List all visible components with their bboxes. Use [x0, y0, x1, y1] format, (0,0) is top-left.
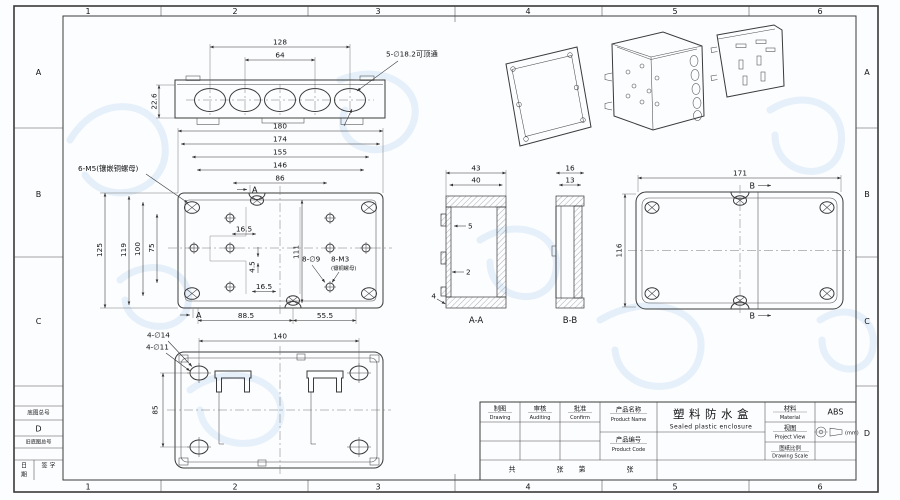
dim-4-5: 4.5: [248, 261, 257, 273]
confirm-label-en: Confirm: [570, 415, 590, 421]
zone-letter: A: [36, 68, 42, 77]
product-code-label-en: Product Code: [612, 447, 645, 453]
dim-88-5: 88.5: [238, 311, 254, 320]
material-label-en: Material: [780, 415, 800, 421]
dim-22-6: 22.6: [150, 93, 159, 110]
confirm-label-zh: 批准: [574, 404, 587, 413]
section-marker-a: A: [252, 186, 258, 195]
dim-180: 180: [273, 122, 287, 131]
section-bb-label: B-B: [563, 316, 578, 326]
dim-13: 13: [565, 176, 575, 185]
dim-146: 146: [273, 161, 287, 170]
dim-16-5-bottom: 16.5: [256, 282, 272, 291]
dim-128: 128: [273, 38, 287, 47]
sheets-label: 张: [627, 465, 634, 474]
zone-letter: C: [864, 317, 870, 326]
zone-number: 3: [375, 483, 380, 492]
zone-number: 5: [672, 483, 677, 492]
insert-note-m5: 6-M5(镶嵌铜螺母): [78, 164, 139, 173]
dim-2: 2: [466, 268, 471, 277]
product-name-label-zh: 产品名称: [616, 405, 642, 414]
dim-5: 5: [468, 222, 473, 231]
zone-letter: B: [36, 190, 42, 199]
dim-16-5-top: 16.5: [236, 225, 252, 234]
zone-number: 4: [525, 483, 530, 492]
product-name-value-zh: 塑料防水盒: [673, 407, 753, 421]
iso-body: [605, 32, 704, 130]
section-bb-view: 16 13 B-B: [552, 164, 584, 327]
scale-label-en: Drawing Scale: [772, 454, 808, 460]
section-marker-b: B: [750, 312, 756, 321]
old-base-drawing-no-label: 旧底图总号: [26, 438, 52, 446]
dim-43: 43: [471, 164, 481, 173]
dim-64: 64: [275, 51, 285, 60]
dim-174: 174: [273, 135, 287, 144]
dim-140: 140: [273, 332, 287, 341]
material-label-zh: 材料: [784, 404, 797, 413]
watermark: [70, 74, 873, 443]
sheets-total-label: 共: [509, 465, 516, 474]
drawing-sheet: 1 2 3 4 5 6 1 2 3 4 5 6 A B C A B C D 底图…: [0, 0, 900, 500]
drawing-label-en: Drawing: [490, 415, 511, 421]
corner-block: 底图总号 D 旧底图总号 日 期 签 字: [14, 406, 63, 480]
front-view: 6-M5(镶嵌铜螺母) 180: [78, 122, 392, 324]
zone-number: 1: [85, 7, 90, 16]
zone-letter: D: [35, 425, 41, 434]
hole-note-d9: 8-∅9: [302, 255, 321, 264]
dim-155: 155: [273, 148, 287, 157]
dim-4: 4: [431, 292, 436, 301]
dim-86: 86: [275, 174, 285, 183]
dim-116: 116: [615, 243, 624, 257]
title-block: 制图 Drawing 审核 Auditing 批准 Confirm 产品名称 P…: [480, 402, 859, 480]
zone-letter: C: [36, 317, 42, 326]
dim-75: 75: [147, 243, 156, 252]
sheets-label: 张: [557, 465, 564, 474]
zone-number: 3: [375, 7, 380, 16]
material-value: ABS: [828, 408, 844, 417]
section-marker-b: B: [750, 182, 756, 191]
dim-125: 125: [95, 243, 104, 257]
zone-number: 6: [817, 483, 822, 492]
date-label: 期: [21, 471, 27, 479]
zone-number: 1: [85, 483, 90, 492]
audit-label-en: Auditing: [530, 415, 551, 421]
product-code-label-zh: 产品编号: [616, 435, 641, 444]
view-label-zh: 视图: [784, 423, 797, 432]
scale-label-zh: 图纸比例: [779, 444, 801, 452]
hole-note-d14: 4-∅14: [147, 331, 170, 340]
iso-lid: [506, 47, 591, 146]
zone-letter: A: [864, 68, 870, 77]
iso-bracket: [711, 25, 784, 97]
unit-label: (mm): [845, 431, 859, 437]
dim-100: 100: [133, 242, 142, 256]
thread-note-m3: 8-M3: [331, 255, 350, 264]
sheet-no-label: 第: [579, 465, 586, 474]
projection-symbol-icon: [814, 427, 842, 437]
dim-55-5: 55.5: [317, 311, 333, 320]
dim-85: 85: [151, 405, 160, 414]
dim-171: 171: [733, 169, 747, 178]
zone-number: 6: [817, 7, 822, 16]
date-label: 日: [21, 463, 27, 470]
product-name-label-en: Product Name: [611, 417, 646, 423]
bottom-view: 140 85 4-∅14 4-∅11: [146, 331, 391, 475]
product-name-value-en: Sealed plastic enclosure: [670, 424, 752, 431]
zone-letter: D: [864, 429, 870, 438]
zone-number: 5: [672, 7, 677, 16]
dim-111: 111: [292, 245, 301, 259]
section-marker-a: A: [196, 311, 202, 320]
isometric-views: [506, 25, 784, 146]
audit-label-zh: 审核: [534, 404, 547, 413]
dim-119: 119: [119, 243, 128, 257]
hole-note-d11: 4-∅11: [146, 343, 169, 352]
section-aa-label: A-A: [469, 316, 484, 326]
signature-label: 签 字: [42, 462, 56, 470]
base-drawing-no-label: 底图总号: [27, 409, 50, 417]
zone-number: 4: [525, 7, 530, 16]
zone-number: 2: [232, 7, 237, 16]
zone-number: 2: [232, 483, 237, 492]
hole-note-18-2: 5-∅18.2可顶通: [386, 50, 438, 59]
back-view: B B 171 116: [615, 169, 851, 321]
thread-sub-note: (镶铜螺母): [331, 264, 356, 272]
dim-40: 40: [471, 176, 481, 185]
view-label-en: Project View: [775, 435, 806, 441]
dim-16: 16: [565, 164, 575, 173]
section-aa-view: 43 40 5 2 4 A-A: [431, 164, 506, 327]
drawing-label-zh: 制图: [494, 404, 507, 413]
zone-letter: B: [864, 190, 870, 199]
